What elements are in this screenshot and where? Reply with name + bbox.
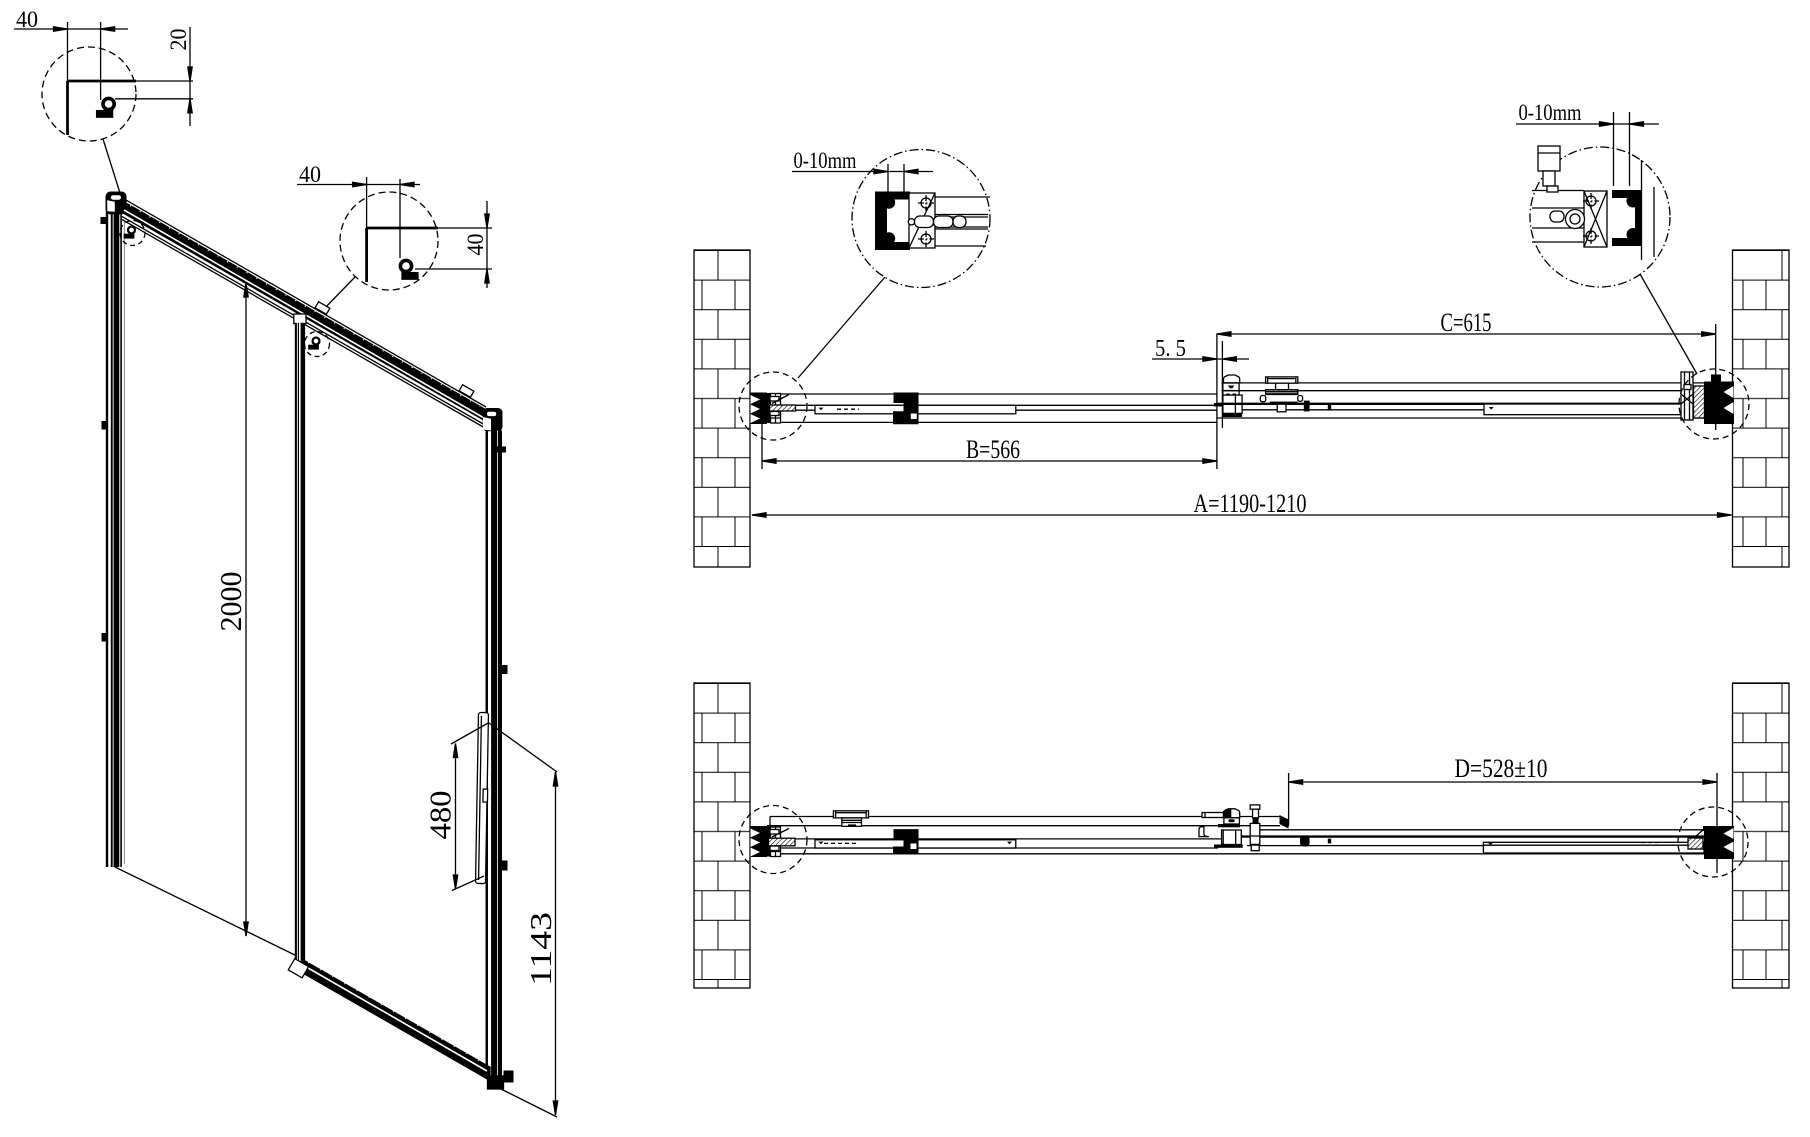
svg-text:5. 5: 5. 5 — [1155, 336, 1186, 362]
svg-text:B=566: B=566 — [966, 435, 1020, 464]
svg-text:1143: 1143 — [523, 912, 558, 986]
svg-text:40: 40 — [299, 162, 321, 187]
svg-text:20: 20 — [166, 29, 191, 51]
svg-text:40: 40 — [463, 234, 488, 256]
svg-text:C=615: C=615 — [1441, 308, 1492, 337]
svg-text:0-10mm: 0-10mm — [794, 148, 857, 173]
svg-text:40: 40 — [16, 7, 38, 32]
svg-text:480: 480 — [423, 791, 458, 840]
svg-text:0-10mm: 0-10mm — [1519, 100, 1582, 125]
svg-text:A=1190-1210: A=1190-1210 — [1194, 489, 1307, 518]
svg-text:D=528±10: D=528±10 — [1455, 754, 1548, 783]
svg-text:2000: 2000 — [213, 572, 248, 632]
